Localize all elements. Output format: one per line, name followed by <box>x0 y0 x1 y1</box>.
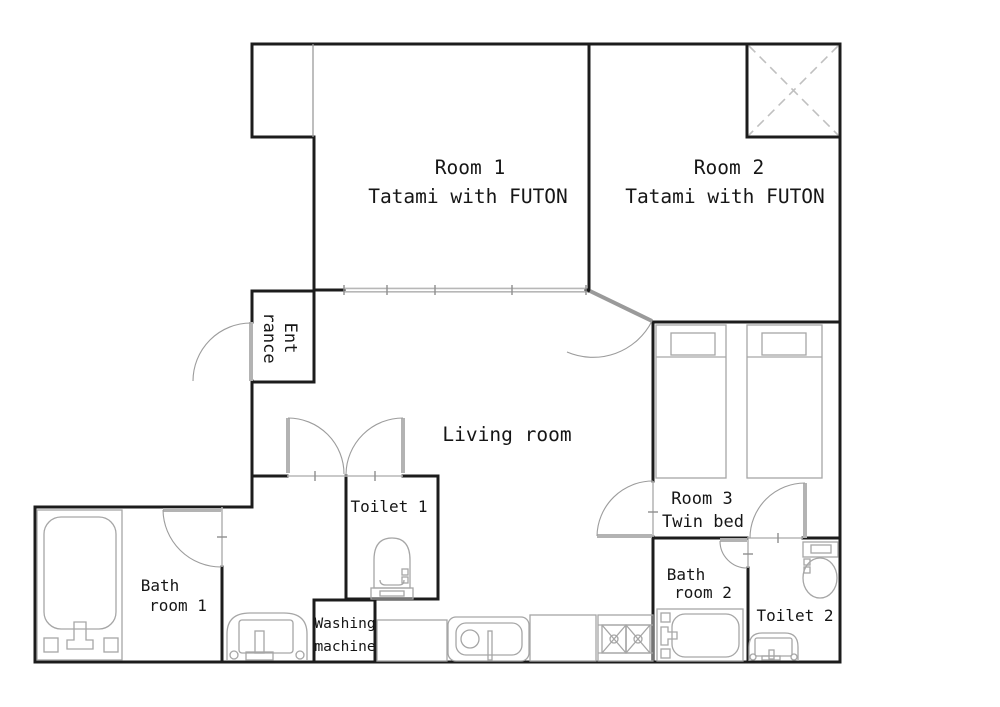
floor-plan-page: Room 1 Tatami with FUTON Room 2 Tatami w… <box>0 0 1000 707</box>
bath2-door-arc <box>720 541 747 568</box>
washbasin-2 <box>749 633 798 661</box>
closet-x-mark <box>749 46 838 135</box>
burner-left <box>602 625 626 653</box>
toilet-2-tank <box>803 542 838 557</box>
bed-2 <box>747 325 822 478</box>
bed-2-pillow <box>762 333 806 355</box>
washbasin-1 <box>227 613 307 660</box>
svg-text:Ent: Ent <box>280 323 300 354</box>
outer-wall-left-upper <box>252 44 314 322</box>
room-2-label: Room 2 <box>694 156 764 179</box>
sliding-door-ticks <box>344 285 586 295</box>
living-room-label: Living room <box>442 423 571 446</box>
entrance-door-arc <box>193 323 251 381</box>
room2-door-leaf <box>590 291 652 321</box>
washing-machine-label-line1: Washing <box>314 616 375 632</box>
toilet-2-fixture <box>803 542 838 598</box>
bathtub-2 <box>657 609 743 661</box>
room-2-sublabel: Tatami with FUTON <box>625 185 825 208</box>
toilet-2-bowl <box>803 558 837 598</box>
room2-door-arc <box>567 321 652 357</box>
kitchen-counter <box>377 615 596 661</box>
bed-1-pillow <box>671 333 715 355</box>
walls <box>35 44 840 662</box>
entrance-label: Ent rance <box>259 312 300 363</box>
room-3-label: Room 3 <box>671 489 732 509</box>
svg-text:rance: rance <box>259 312 279 363</box>
bath-room-1-label-line1: Bath <box>141 576 180 595</box>
bathtub-1 <box>37 510 122 660</box>
floor-plan-drawing: Room 1 Tatami with FUTON Room 2 Tatami w… <box>0 0 1000 707</box>
room-1-sublabel: Tatami with FUTON <box>368 185 568 208</box>
kitchen-sink <box>448 617 529 661</box>
room-3-sublabel: Twin bed <box>662 512 744 532</box>
bath1-door-arc <box>163 510 221 567</box>
labels: Room 1 Tatami with FUTON Room 2 Tatami w… <box>141 156 834 655</box>
sink-drain <box>461 630 479 648</box>
toilet2-door-arc <box>750 483 805 538</box>
toilet-2-label: Toilet 2 <box>756 606 833 625</box>
washroom-door-left-arc <box>288 418 344 474</box>
bathtub-1-faucet <box>67 622 93 649</box>
burner-right <box>626 625 650 653</box>
room-1-label: Room 1 <box>435 156 505 179</box>
partition-lines <box>163 44 838 568</box>
toilet-1-fixture <box>371 538 413 599</box>
bath-room-2-label-line2: room 2 <box>674 583 732 602</box>
washroom-door-right-arc <box>346 418 403 474</box>
bath-room-2-label-line1: Bath <box>667 565 706 584</box>
sink-faucet <box>488 631 492 660</box>
bed-1 <box>656 325 726 478</box>
toilet-1-label: Toilet 1 <box>350 497 427 516</box>
room3-door-arc <box>597 481 653 536</box>
bathtub-2-faucet <box>661 627 677 645</box>
washing-machine-label-line2: machine <box>314 639 375 655</box>
stove <box>598 615 653 661</box>
sliding-door-rails <box>344 288 586 291</box>
bath-room-1-label-line2: room 1 <box>149 596 207 615</box>
